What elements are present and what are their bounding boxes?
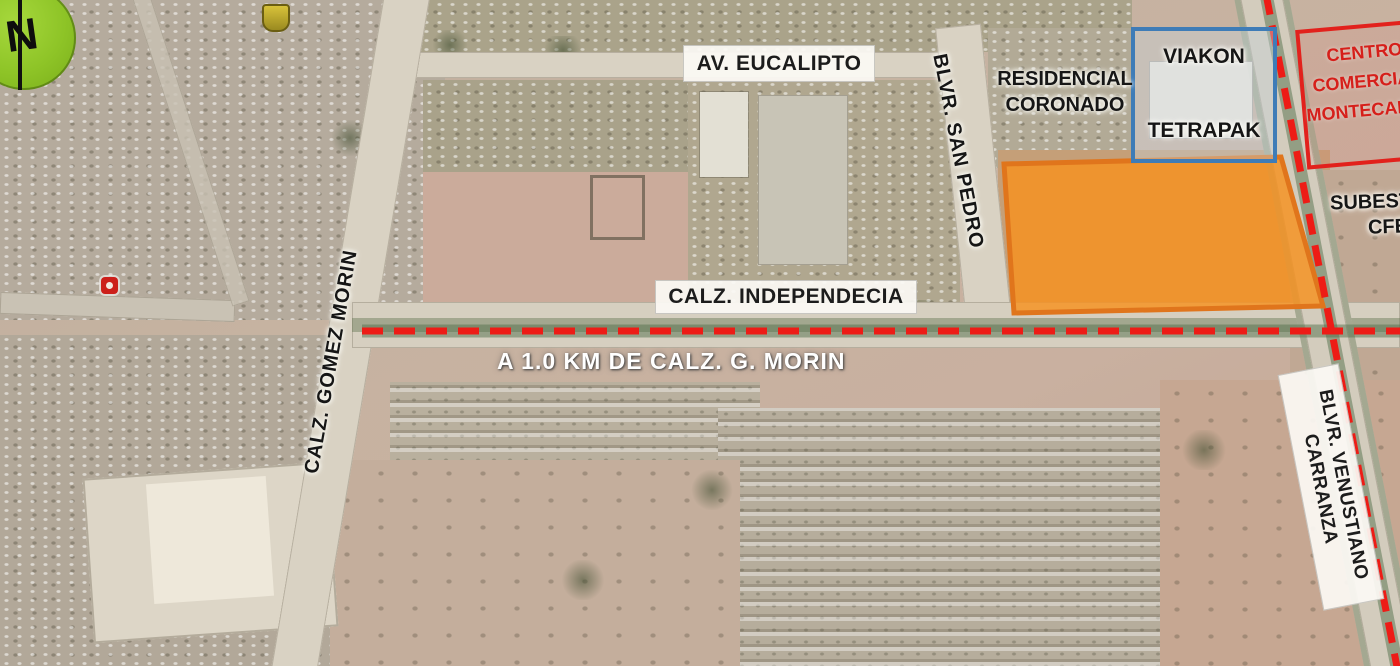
label-residencial-coronado-line1: RESIDENCIAL xyxy=(995,68,1135,91)
label-calz-independecia: CALZ. INDEPENDECIA xyxy=(655,280,917,314)
tetrapak-label: TETRAPAK xyxy=(1135,119,1273,143)
label-residencial-coronado-line2: CORONADO xyxy=(995,94,1135,117)
centro-comercial-box: CENTRO COMERCIAL MONTECARLO xyxy=(1295,18,1400,169)
label-subestacion-line2: CFE xyxy=(1368,215,1400,239)
highlighted-property-polygon xyxy=(1004,157,1323,313)
viakon-tetrapak-box: VIAKON TETRAPAK xyxy=(1131,27,1277,163)
poi-marker-dot xyxy=(106,282,113,289)
centro-comercial-label-line3: MONTECARLO xyxy=(1306,94,1400,126)
label-distance-note: A 1.0 KM DE CALZ. G. MORIN xyxy=(497,348,845,375)
centro-comercial-label-line1: CENTRO xyxy=(1301,37,1400,69)
centro-comercial-label-line2: COMERCIAL xyxy=(1303,66,1400,98)
north-letter: N xyxy=(3,12,41,60)
poi-marker-icon xyxy=(101,277,118,294)
highway-shield-icon xyxy=(262,4,290,32)
label-av-eucalipto: AV. EUCALIPTO xyxy=(683,45,875,82)
label-subestacion-line1: SUBESTACION xyxy=(1330,187,1400,215)
satellite-map-image: VIAKON TETRAPAK CENTRO COMERCIAL MONTECA… xyxy=(0,0,1400,666)
viakon-label: VIAKON xyxy=(1135,45,1273,69)
